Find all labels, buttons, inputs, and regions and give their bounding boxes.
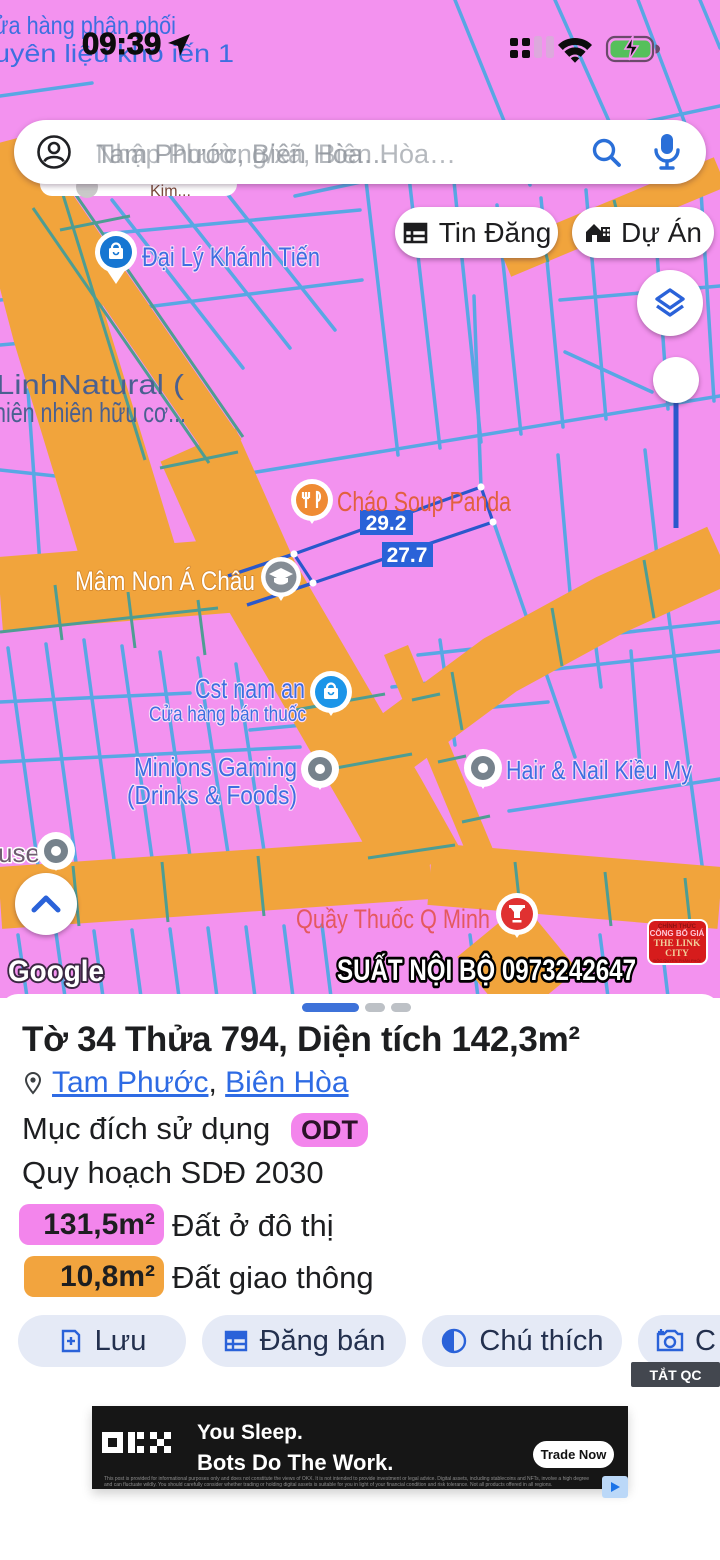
svg-text:Kim...: Kim... bbox=[150, 183, 191, 200]
svg-text:Hair & Nail Kiều My: Hair & Nail Kiều My bbox=[506, 755, 692, 785]
svg-text:Mâm Non Á Châu: Mâm Non Á Châu bbox=[75, 566, 255, 596]
svg-text:THE LINK: THE LINK bbox=[654, 939, 701, 949]
svg-text:Cst nam an: Cst nam an bbox=[195, 673, 305, 704]
svg-text:Google: Google bbox=[8, 955, 104, 988]
svg-text:27.7: 27.7 bbox=[387, 544, 428, 567]
svg-text:ĐỘC QUYỀN PHÂN PHỐI: ĐỘC QUYỀN PHÂN PHỐI bbox=[653, 958, 700, 963]
svg-text:LinhNatural (: LinhNatural ( bbox=[0, 369, 185, 400]
svg-text:Đại Lý Khánh Tiến: Đại Lý Khánh Tiến bbox=[142, 242, 320, 272]
svg-text:Cửa hàng bán thuốc: Cửa hàng bán thuốc bbox=[149, 703, 306, 726]
svg-text:use: use bbox=[0, 838, 40, 868]
svg-text:SUẤT NỘI BỘ 0973242647: SUẤT NỘI BỘ 0973242647 bbox=[337, 953, 636, 987]
svg-text:Minions Gaming: Minions Gaming bbox=[134, 752, 297, 782]
svg-text:Quầy Thuốc Q Minh: Quầy Thuốc Q Minh bbox=[296, 904, 490, 934]
svg-text:(Drinks & Foods): (Drinks & Foods) bbox=[127, 780, 297, 810]
svg-text:CÔNG BỐ GIÁ: CÔNG BỐ GIÁ bbox=[650, 928, 705, 938]
svg-text:Cháo Soup Panda: Cháo Soup Panda bbox=[337, 486, 511, 517]
svg-text:hiên nhiên hữu cơ...: hiên nhiên hữu cơ... bbox=[0, 397, 186, 428]
